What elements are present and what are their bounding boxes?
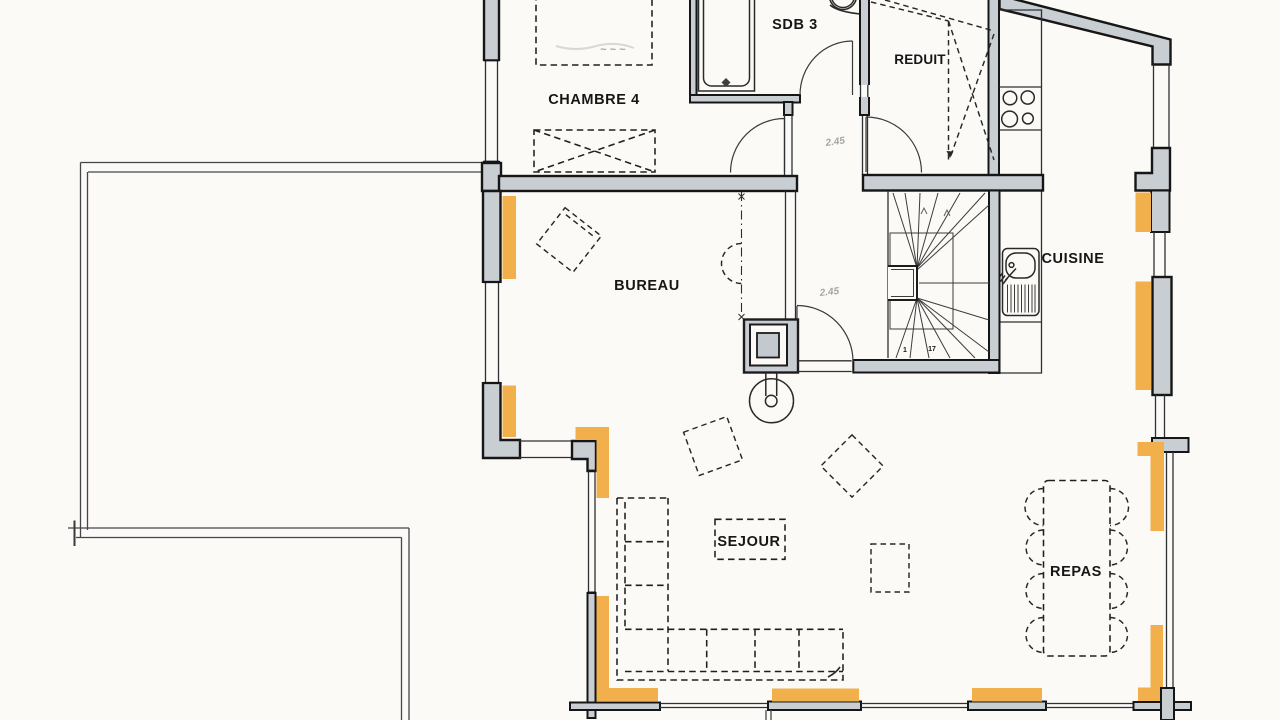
svg-text:2.45: 2.45 (818, 286, 840, 299)
svg-text:CUISINE: CUISINE (1041, 251, 1104, 267)
svg-text:REPAS: REPAS (1050, 564, 1102, 580)
svg-text:CHAMBRE 4: CHAMBRE 4 (548, 92, 640, 108)
svg-text:17: 17 (928, 346, 936, 353)
svg-text:BUREAU: BUREAU (614, 278, 680, 294)
svg-text:SEJOUR: SEJOUR (717, 534, 780, 550)
svg-text:~ ~ ~: ~ ~ ~ (600, 44, 626, 56)
svg-text:REDUIT: REDUIT (894, 52, 946, 67)
svg-text:1: 1 (903, 347, 907, 354)
svg-text:SDB 3: SDB 3 (772, 17, 818, 33)
